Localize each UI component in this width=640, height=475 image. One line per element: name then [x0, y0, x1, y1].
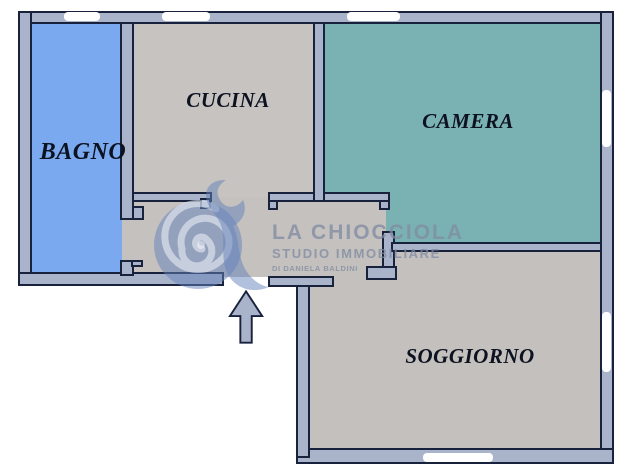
- wall-soggiorno-top-left: [268, 276, 334, 287]
- window-soggiorno-right: [602, 312, 611, 372]
- room-label-bagno: BAGNO: [23, 139, 143, 166]
- wall-bagno-cucina: [120, 22, 134, 220]
- window-camera-right: [602, 90, 611, 147]
- room-label-cucina: CUCINA: [158, 88, 298, 113]
- wall-cucina-camera: [313, 22, 325, 202]
- window-bagno-top: [64, 12, 100, 21]
- room-label-camera: CAMERA: [398, 109, 538, 134]
- wall-soggiorno-door-jamb-right: [366, 266, 397, 280]
- wall-bagno-door-jamb-top: [132, 206, 144, 220]
- wall-camera-soggiorno: [391, 242, 602, 252]
- window-camera-top: [347, 12, 400, 21]
- entrance-arrow-icon: [228, 288, 266, 346]
- wall-cucina-hall-right: [268, 192, 390, 202]
- wall-bagno-jamb-foot: [131, 260, 143, 267]
- window-soggiorno-bottom: [423, 453, 493, 462]
- wall-soggiorno-left: [296, 276, 310, 458]
- hallway-floor-notch: [320, 200, 386, 246]
- wall-camera-door-jamb-top: [379, 200, 390, 210]
- wall-hall-jamb-left: [268, 200, 278, 210]
- room-label-soggiorno: SOGGIORNO: [380, 344, 560, 369]
- wall-cucina-door-jamb: [200, 198, 211, 209]
- window-cucina-top: [162, 12, 210, 21]
- floor-plan: BAGNO CUCINA CAMERA SOGGIORNO LA CHIOCCI…: [0, 0, 640, 475]
- wall-outer-right: [600, 11, 614, 464]
